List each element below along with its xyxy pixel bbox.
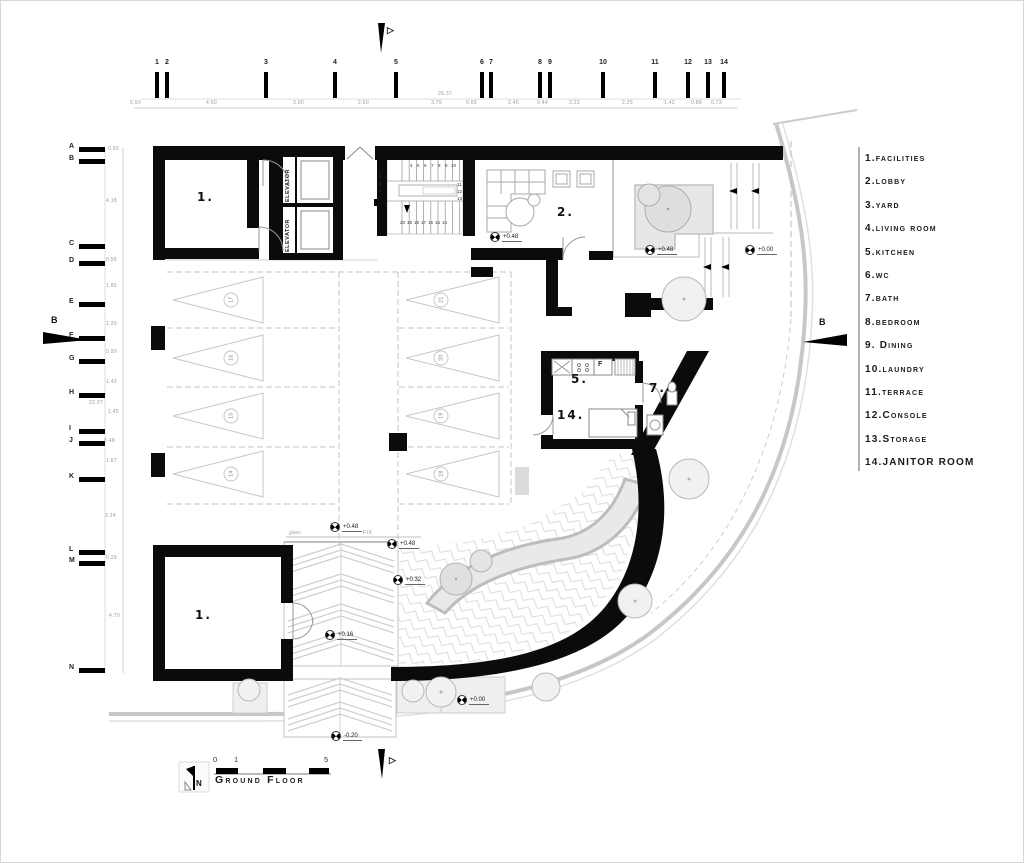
grid-row-label: K: [69, 473, 74, 480]
grid-row-label: I: [69, 425, 71, 432]
section-letter: ▷: [387, 26, 394, 35]
dimension-top: 0.44: [537, 101, 548, 106]
legend-item: 5.kitchen: [865, 241, 975, 264]
dimension-top: 2.25: [622, 101, 633, 106]
dimension-left: 4.18: [106, 199, 117, 204]
parking-stall-number: 18: [439, 471, 445, 477]
dimension-left: 0.29: [106, 556, 117, 561]
stair-tread-number: 5: [417, 164, 420, 169]
drawing-title: Ground Floor: [215, 774, 305, 786]
level-marker: +0.00: [457, 695, 489, 705]
legend-item: 11.terrace: [865, 381, 975, 404]
room-number-label: 1.: [195, 609, 212, 621]
level-value: +0.48: [399, 541, 419, 549]
grid-col-tick: [165, 72, 169, 98]
legend-item: 3.yard: [865, 194, 975, 217]
legend-item: 12.Console: [865, 404, 975, 427]
stair-tread-number: 16: [428, 221, 433, 226]
grid-col-tick: [264, 72, 268, 98]
grid-col-tick: [538, 72, 542, 98]
level-value: +0.48: [342, 524, 362, 532]
scale-label-5: 5: [324, 756, 328, 764]
dimension-left: 22.27: [89, 401, 103, 406]
stair-tread-number: 13: [457, 197, 462, 202]
grid-col-label: 12: [684, 59, 692, 66]
room-number-label: 2.: [557, 206, 574, 218]
stair-tread-number: 14: [442, 221, 447, 226]
benchmark-icon: [645, 245, 655, 255]
legend-item: 2.lobby: [865, 170, 975, 193]
benchmark-icon: [745, 245, 755, 255]
annotation: glass: [289, 531, 301, 536]
legend-item: 13.Storage: [865, 428, 975, 451]
level-marker: +0.48: [330, 522, 362, 532]
dimension-left: 0.56: [106, 258, 117, 263]
dimension-top: 4.50: [206, 101, 217, 106]
grid-row-label: M: [69, 557, 75, 564]
north-label: N: [196, 780, 202, 788]
stair-tread-number: 19: [407, 221, 412, 226]
dimension-left: 1.42: [106, 380, 117, 385]
grid-row-label: G: [69, 355, 74, 362]
grid-col-label: 13: [704, 59, 712, 66]
stair-tread-number: 20: [400, 221, 405, 226]
grid-row-label: B: [69, 155, 74, 162]
grid-row-label: D: [69, 257, 74, 264]
grid-col-label: 10: [599, 59, 607, 66]
dimension-top: 3.00: [293, 101, 304, 106]
grid-row-label: C: [69, 240, 74, 247]
stair-tread-number: 12: [457, 190, 462, 195]
grid-col-tick: [653, 72, 657, 98]
grid-col-tick: [548, 72, 552, 98]
level-marker: -0.20: [331, 731, 362, 741]
dimension-top: 0.50: [130, 101, 141, 106]
grid-col-tick: [489, 72, 493, 98]
parking-garage: [167, 272, 529, 546]
grid-col-label: 11: [651, 59, 658, 66]
legend-item: 8.bedroom: [865, 311, 975, 334]
grid-row-tick: [79, 336, 105, 341]
grid-row-tick: [79, 359, 105, 364]
dimension-top: 0.88: [691, 101, 702, 106]
annotation: FIX: [363, 531, 372, 536]
grid-col-label: 6: [480, 59, 484, 66]
stair-tread-number: 6: [424, 164, 427, 169]
grid-row-tick: [79, 668, 105, 673]
grid-col-label: 4: [333, 59, 337, 66]
dimension-top: 3.75: [431, 101, 442, 106]
grid-col-label: 9: [548, 59, 552, 66]
north-arrow-icon: [179, 762, 209, 792]
parking-stall-number: 14: [229, 471, 235, 477]
stair-tread-number: 18: [414, 221, 419, 226]
dimension-top: 26.37: [438, 92, 452, 97]
section-letter: ▷: [389, 756, 396, 765]
dimension-left: 0.48: [104, 439, 115, 444]
parking-stall-number: 19: [439, 413, 445, 419]
level-marker: +0.48: [645, 245, 677, 255]
parking-stall-number: 15: [229, 413, 235, 419]
stair-tread-number: 4: [410, 164, 413, 169]
grid-col-tick: [706, 72, 710, 98]
legend-item: 7.bath: [865, 287, 975, 310]
parking-stall-number: 17: [229, 297, 235, 303]
top-entry-door: [345, 146, 375, 160]
dimension-left: 4.70: [109, 614, 120, 619]
stair-tread-number: 11: [457, 183, 462, 188]
grid-row-tick: [79, 561, 105, 566]
dimension-left: 1.85: [106, 284, 117, 289]
grid-col-label: 14: [720, 59, 728, 66]
dimension-left: 3.24: [105, 514, 116, 519]
grid-row-tick: [79, 393, 105, 398]
benchmark-icon: [387, 539, 397, 549]
grid-row-label: F: [69, 332, 73, 339]
grid-row-tick: [79, 147, 105, 152]
dimension-top: 2.60: [358, 101, 369, 106]
parking-stall-number: 21: [439, 297, 445, 303]
stair-tread-number: 7: [431, 164, 434, 169]
grid-row-tick: [79, 302, 105, 307]
elevator-label: ELEVATOR: [286, 219, 292, 252]
benchmark-icon: [325, 630, 335, 640]
stair-tread-number: 15: [435, 221, 440, 226]
room-number-label: 5.: [571, 373, 588, 385]
dimension-top: 0.65: [466, 101, 477, 106]
stair-tread-number: 8: [438, 164, 441, 169]
level-value: +0.32: [405, 577, 425, 585]
grid-col-label: 2: [165, 59, 169, 66]
stair-tread-number: 10: [451, 164, 456, 169]
dimension-left: 1.39: [106, 322, 117, 327]
floor-plan-sheet: 1234567891011121314ABCDEFGHIJKLMN0.504.5…: [0, 0, 1024, 863]
grid-row-tick: [79, 550, 105, 555]
legend-item: 14.JANITOR ROOM: [865, 451, 975, 474]
grid-col-tick: [686, 72, 690, 98]
grid-row-tick: [79, 159, 105, 164]
grid-col-label: 7: [489, 59, 493, 66]
benchmark-icon: [331, 731, 341, 741]
parking-stall-number: 20: [439, 355, 445, 361]
room-legend: 1.facilities2.lobby3.yard4.living room5.…: [865, 147, 975, 474]
legend-item: 4.living room: [865, 217, 975, 240]
level-value: +0.48: [657, 247, 677, 255]
level-value: +0.00: [469, 697, 489, 705]
legend-item: 9. Dining: [865, 334, 975, 357]
benchmark-icon: [490, 232, 500, 242]
dimension-left: 0.99: [106, 350, 117, 355]
dimension-top: 3.23: [569, 101, 580, 106]
level-value: +0.48: [502, 234, 522, 242]
benchmark-icon: [330, 522, 340, 532]
grid-row-tick: [79, 429, 105, 434]
room-number-label: 1.: [197, 191, 214, 203]
dimension-top: 2.45: [508, 101, 519, 106]
grid-col-tick: [394, 72, 398, 98]
grid-row-label: N: [69, 664, 74, 671]
level-marker: +0.00: [745, 245, 777, 255]
level-marker: +0.16: [325, 630, 357, 640]
level-marker: +0.48: [490, 232, 522, 242]
stair-tread-number: 17: [421, 221, 426, 226]
section-letter: B: [819, 318, 826, 327]
grid-col-tick: [601, 72, 605, 98]
room-number-label: 14.: [557, 409, 584, 421]
grid-row-label: H: [69, 389, 74, 396]
dimension-left: 1.67: [106, 459, 117, 464]
grid-col-label: 3: [264, 59, 268, 66]
legend-item: 1.facilities: [865, 147, 975, 170]
grid-col-tick: [722, 72, 726, 98]
grid-col-tick: [333, 72, 337, 98]
legend-item: 6.wc: [865, 264, 975, 287]
terrace-planter: [635, 184, 713, 249]
grid-col-tick: [155, 72, 159, 98]
grid-row-tick: [79, 244, 105, 249]
fridge-label: F: [598, 361, 602, 368]
grid-row-tick: [79, 477, 105, 482]
dimension-left: 0.93: [108, 147, 119, 152]
grid-row-label: A: [69, 143, 74, 150]
grid-col-label: 5: [394, 59, 398, 66]
grid-col-tick: [480, 72, 484, 98]
stair-tread-number: 3: [379, 175, 382, 180]
gray-box: [515, 467, 529, 495]
level-value: -0.20: [343, 733, 362, 741]
dimension-top: 1.42: [664, 101, 675, 106]
level-value: +0.00: [757, 247, 777, 255]
grid-col-label: 1: [155, 59, 159, 66]
parking-stall-number: 16: [229, 355, 235, 361]
level-marker: +0.32: [393, 575, 425, 585]
legend-item: 10.laundry: [865, 358, 975, 381]
level-marker: +0.48: [387, 539, 419, 549]
grid-col-label: 8: [538, 59, 542, 66]
scale-label-0: 0: [213, 756, 217, 764]
dimension-top: 0.73: [711, 101, 722, 106]
room-number-label: 7.: [649, 382, 666, 394]
grid-row-tick: [79, 261, 105, 266]
elevator-label: ELEVATOR: [286, 169, 292, 202]
grid-row-label: E: [69, 298, 74, 305]
section-letter: B: [51, 316, 58, 325]
stair-tread-number: 2: [379, 182, 382, 187]
stair-tread-number: 9: [445, 164, 448, 169]
scale-label-1: 1: [234, 756, 238, 764]
benchmark-icon: [393, 575, 403, 585]
level-value: +0.16: [337, 632, 357, 640]
grid-row-tick: [79, 441, 105, 446]
grid-row-label: L: [69, 546, 73, 553]
stair-tread-number: 1: [379, 189, 382, 194]
benchmark-icon: [457, 695, 467, 705]
grid-row-label: J: [69, 437, 73, 444]
dimension-left: 1.45: [108, 410, 119, 415]
